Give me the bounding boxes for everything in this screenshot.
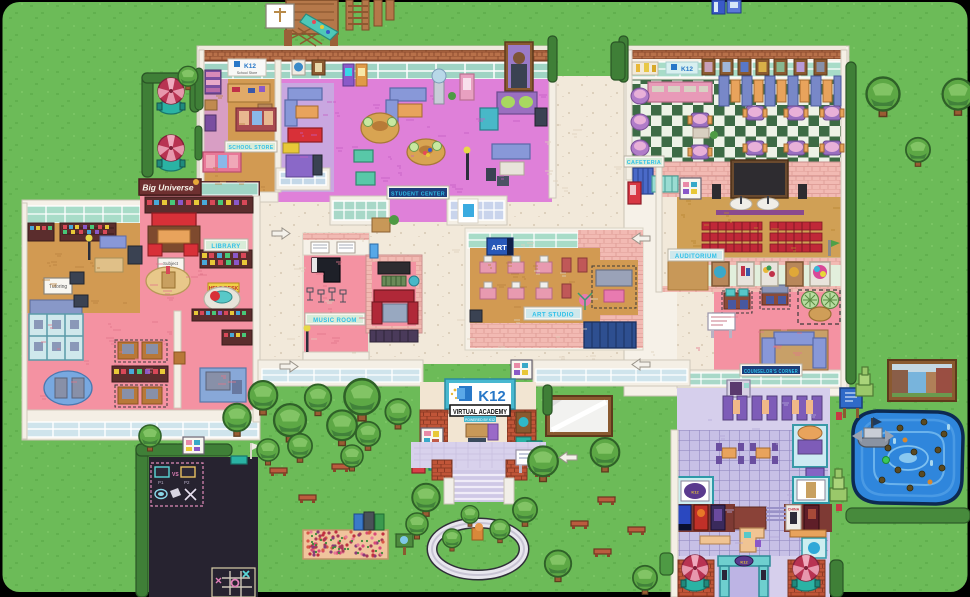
svg-text:ART: ART (491, 243, 507, 252)
svg-text:Big Universe: Big Universe (142, 183, 194, 193)
svg-text:VIRTUAL ACADEMY: VIRTUAL ACADEMY (453, 409, 507, 416)
svg-text:P2: P2 (184, 480, 190, 485)
svg-text:MUSIC ROOM: MUSIC ROOM (313, 318, 357, 324)
svg-text:K12: K12 (244, 63, 256, 70)
svg-text:POWERED BY K12: POWERED BY K12 (465, 418, 495, 422)
svg-text:LIBRARY: LIBRARY (211, 244, 240, 250)
svg-text:K12: K12 (681, 66, 693, 73)
svg-text:AUDITORIUM: AUDITORIUM (675, 254, 717, 260)
svg-text:ART STUDIO: ART STUDIO (532, 312, 574, 319)
svg-text:K12: K12 (691, 490, 699, 495)
svg-text:K12: K12 (478, 388, 506, 405)
svg-text:CAFETERIA: CAFETERIA (627, 160, 661, 166)
svg-text:School Store: School Store (237, 71, 258, 75)
svg-text:COUNSELOR'S CORNER: COUNSELOR'S CORNER (744, 369, 798, 375)
svg-text:STUDENT CENTER: STUDENT CENTER (391, 191, 445, 197)
svg-text:Subject: Subject (163, 261, 179, 266)
svg-text:SCHOOL STORE: SCHOOL STORE (229, 145, 274, 151)
svg-text:CHINA: CHINA (788, 508, 800, 512)
svg-text:K12: K12 (740, 560, 748, 565)
svg-text:VS: VS (172, 472, 179, 478)
svg-text:P1: P1 (158, 480, 164, 485)
svg-text:Tutoring: Tutoring (49, 284, 67, 290)
